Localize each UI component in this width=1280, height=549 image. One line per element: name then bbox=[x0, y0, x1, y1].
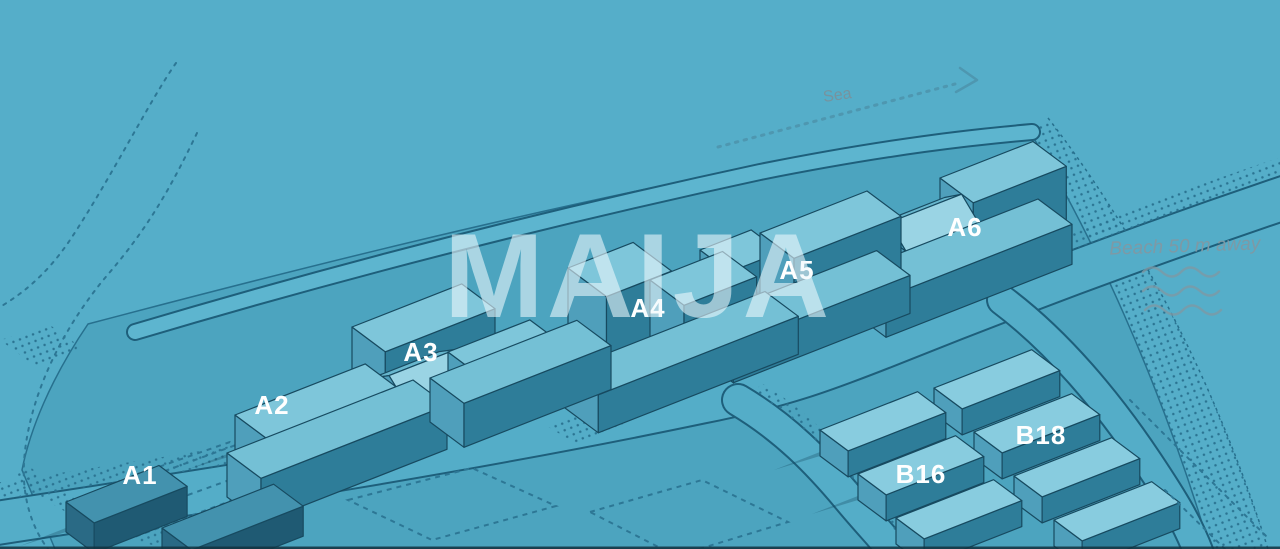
building-label-a6: A6 bbox=[947, 212, 982, 242]
site-plan-image: A1 A2 A3 A4 A5 A6 B16 B18 MAIJASeaBeach … bbox=[0, 0, 1280, 549]
building-label-b16: B16 bbox=[896, 459, 947, 489]
site-plan-illustration: A1 A2 A3 A4 A5 A6 B16 B18 MAIJASeaBeach … bbox=[0, 0, 1280, 549]
building-label-a2: A2 bbox=[254, 390, 289, 420]
building-label-a1: A1 bbox=[122, 460, 157, 490]
building-label-a3: A3 bbox=[403, 337, 438, 367]
watermark: MAIJA bbox=[444, 209, 832, 343]
building-label-b18: B18 bbox=[1016, 420, 1067, 450]
